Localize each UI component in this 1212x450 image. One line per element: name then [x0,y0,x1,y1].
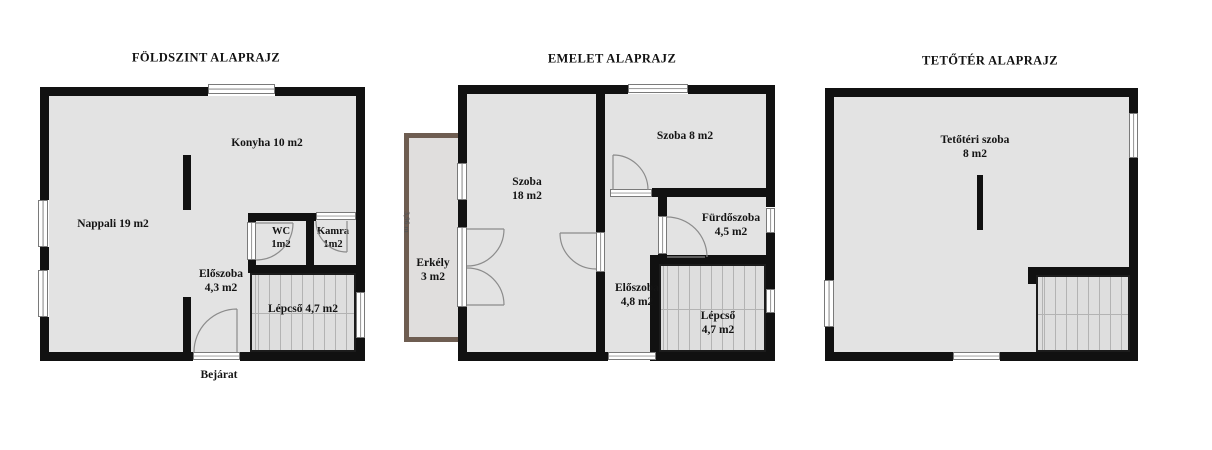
wall [40,247,49,270]
room-label-szoba8: Szoba 8 m2 [657,129,713,143]
balcony-door-sill [457,227,467,307]
partition-wall [596,272,605,361]
balcony-wall [404,337,459,342]
window [766,289,775,313]
room-label-line: 3 m2 [416,270,449,284]
window [953,352,1000,360]
room-label-line: 4,7 m2 [701,323,736,337]
wall [656,352,775,361]
partition-wall [658,197,667,217]
wall [688,85,775,94]
wall [240,352,365,361]
partition-wall [183,155,191,210]
room-label-line: Előszoba [615,281,659,295]
room-label-line: Tetőtéri szoba [941,133,1010,147]
room-label-line: 8 m2 [941,147,1010,161]
room-label-kamra: Kamra 1m2 [317,226,349,252]
room-label-line: 4,3 m2 [199,281,243,295]
partition-wall [650,264,659,361]
plan-title-floor1: EMELET ALAPRAJZ [548,52,676,67]
wall [275,87,365,96]
wall [825,327,834,361]
wall [825,352,953,361]
entrance-label: Bejárat [200,368,237,382]
room-label-line: 4,8 m2 [615,295,659,309]
door-sill [610,189,652,197]
wall [825,88,1138,97]
room-label-line: Kamra [317,226,349,239]
balcony-wall [404,133,459,138]
window [38,270,48,317]
room-label-nappali: Nappali 19 m2 [77,217,149,231]
window [628,84,688,93]
wall [306,213,314,265]
window [38,200,48,247]
window [824,280,834,327]
room-label-lepcso: Lépcső 4,7 m2 [268,302,338,316]
door-sill [316,212,356,220]
partition-wall [596,85,605,232]
window [457,163,467,200]
partition-wall [183,297,191,352]
room-label-konyha: Konyha 10 m2 [231,136,303,150]
window [1129,113,1138,158]
room-label-lepcso-floor1: Lépcső 4,7 m2 [701,309,736,337]
room-label-furdoszoba: Fürdőszoba 4,5 m2 [702,211,760,239]
window [766,208,775,233]
wall [356,87,365,292]
door-sill [596,232,605,272]
room-label-line: 4,5 m2 [702,225,760,239]
room-label-line: Fürdőszoba [702,211,760,225]
room-label-line: 1m2 [317,239,349,252]
room-label-eloszoba: Előszoba 4,3 m2 [199,267,243,295]
wall [766,313,775,361]
room-label-erkely: Erkély 3 m2 [416,256,449,284]
plan-title-ground: FÖLDSZINT ALAPRAJZ [132,51,280,66]
room-label-line: Lépcső [701,309,736,323]
door-sill [608,352,656,360]
room-label-eloszoba-floor1: Előszoba 4,8 m2 [615,281,659,309]
room-label-wc: WC 1m2 [271,226,290,252]
wall [40,352,193,361]
wall [458,307,467,361]
door-sill [658,216,667,254]
wall [458,352,608,361]
room-label-line: 1m2 [271,239,290,252]
wall [1000,352,1138,361]
room-label-line: WC [271,226,290,239]
door-sill [247,222,256,260]
wall [356,338,365,361]
wall [825,88,834,280]
entrance-door-sill [193,352,240,360]
wall [1129,158,1138,361]
room-label-tetoteri-szoba: Tetőtéri szoba 8 m2 [941,133,1010,161]
partition-wall [1028,267,1036,284]
room-label-line: Erkély [416,256,449,270]
plan-title-attic: TETŐTÉR ALAPRAJZ [922,54,1058,69]
partition-wall [650,255,775,264]
wall [248,213,256,222]
floorplan-sheet: FÖLDSZINT ALAPRAJZ Konyha 10 m2 Nappali [0,0,1212,450]
stairs [1036,275,1130,352]
wall [40,87,208,96]
balcony-floor [409,138,458,337]
room-label-line: 18 m2 [512,189,542,203]
balcony-wall [404,133,409,342]
room-label-szoba18: Szoba 18 m2 [512,175,542,203]
window [208,84,275,94]
partition-wall [652,188,775,197]
wall [40,317,49,361]
window [356,292,365,338]
wall [458,200,467,227]
room-label-line: Szoba [512,175,542,189]
wall [1129,88,1138,113]
wall [40,87,49,200]
wall [458,85,467,163]
wall [248,265,357,273]
balcony-dimension-text: 3,96 m [403,211,412,232]
room-label-line: Előszoba [199,267,243,281]
partition-wall [1028,267,1138,275]
partition-wall [977,175,983,230]
